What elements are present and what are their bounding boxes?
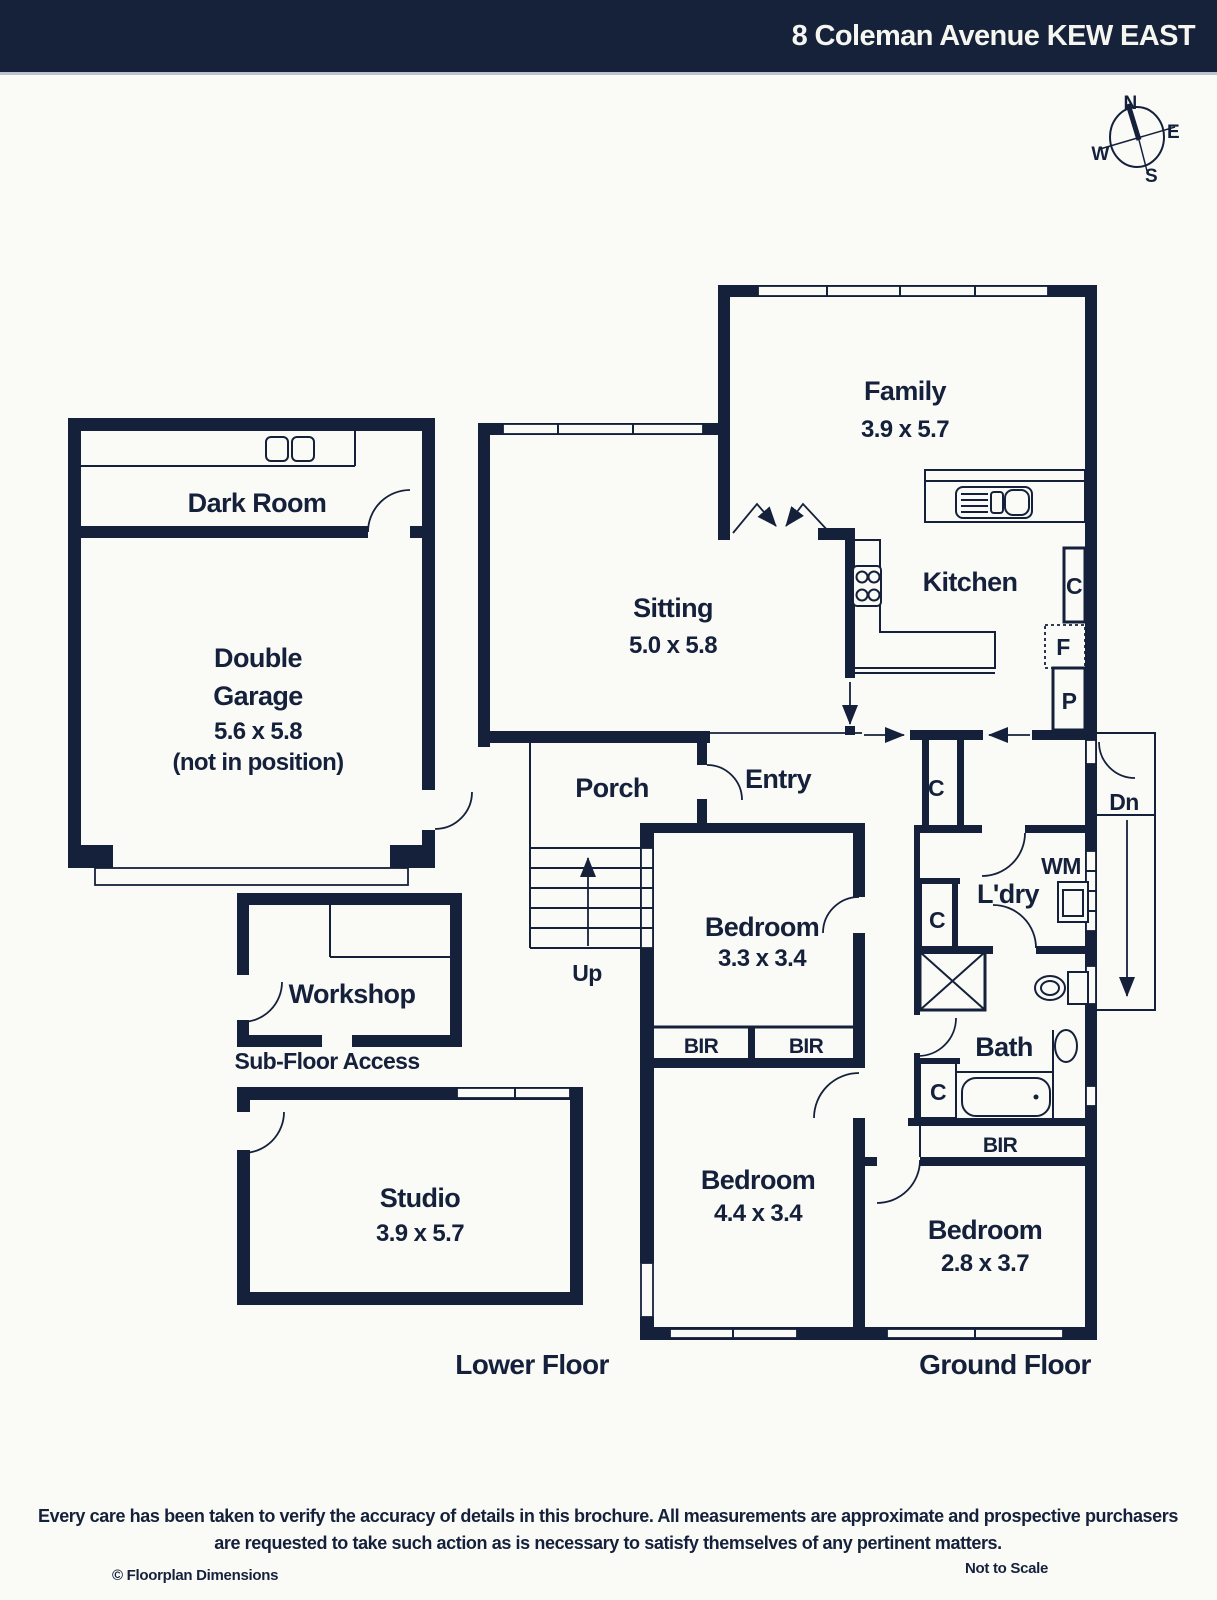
bedroom1-door bbox=[823, 897, 859, 933]
label-dn: Dn bbox=[1109, 789, 1138, 815]
label-hall-cupboard: C bbox=[928, 775, 944, 801]
label-wm: WM bbox=[1041, 853, 1081, 879]
hall-arrows bbox=[709, 682, 1030, 735]
room-label-sitting: Sitting bbox=[633, 593, 713, 623]
room-label-kitchen: Kitchen bbox=[923, 567, 1018, 597]
family-window bbox=[758, 286, 1048, 296]
workshop-structure: Workshop Sub-Floor Access bbox=[234, 893, 462, 1074]
shower-icon bbox=[920, 952, 985, 1010]
room-dims-sitting: 5.0 x 5.8 bbox=[629, 632, 717, 659]
room-dims-studio: 3.9 x 5.7 bbox=[376, 1220, 464, 1247]
laundry-door bbox=[982, 833, 1025, 876]
studio-structure: Studio 3.9 x 5.7 Lower Floor bbox=[237, 1087, 610, 1380]
basin-icon bbox=[1055, 1030, 1077, 1062]
bedroom3-door bbox=[877, 1160, 920, 1203]
room-dims-bedroom2: 4.4 x 3.4 bbox=[714, 1200, 803, 1227]
stairs-down: Dn bbox=[1097, 733, 1155, 1010]
room-label-laundry: L'dry bbox=[977, 879, 1040, 909]
laundry-bath-door bbox=[993, 905, 1036, 948]
label-bir-bath: BIR bbox=[983, 1134, 1018, 1157]
darkroom-sink-icon bbox=[292, 437, 314, 461]
cooktop-icon bbox=[853, 566, 881, 606]
sitting-window bbox=[503, 424, 703, 434]
room-dims-bedroom1: 3.3 x 3.4 bbox=[718, 945, 807, 972]
room-label-garage-1: Double bbox=[214, 643, 302, 673]
room-note-garage: (not in position) bbox=[172, 749, 343, 776]
bath-door bbox=[918, 1018, 956, 1056]
room-label-studio: Studio bbox=[380, 1183, 460, 1213]
room-dims-garage: 5.6 x 5.8 bbox=[214, 718, 302, 745]
label-ground-floor: Ground Floor bbox=[919, 1349, 1091, 1380]
room-label-bath: Bath bbox=[975, 1032, 1033, 1062]
garage-side-door bbox=[435, 792, 472, 829]
footer: Every care has been taken to verify the … bbox=[38, 1506, 1178, 1584]
room-dims-family: 3.9 x 5.7 bbox=[861, 416, 949, 443]
label-sub-floor-access: Sub-Floor Access bbox=[234, 1048, 419, 1074]
floorplan-canvas: 8 Coleman Avenue KEW EAST N E W S Dark R… bbox=[0, 0, 1217, 1600]
label-lower-floor: Lower Floor bbox=[455, 1349, 609, 1380]
room-label-porch: Porch bbox=[575, 773, 649, 803]
kitchen-sink-icon bbox=[956, 487, 1032, 518]
garage-door-panel bbox=[95, 868, 408, 885]
room-label-dark-room: Dark Room bbox=[188, 488, 327, 518]
room-label-bedroom3: Bedroom bbox=[928, 1215, 1042, 1245]
compass-east-label: E bbox=[1167, 122, 1179, 143]
disclaimer-line1: Every care has been taken to verify the … bbox=[38, 1506, 1178, 1526]
garage-structure: Dark Room Double Garage 5.6 x 5.8 (not i… bbox=[68, 418, 472, 885]
room-label-garage-2: Garage bbox=[213, 681, 303, 711]
room-dims-bedroom3: 2.8 x 3.7 bbox=[941, 1250, 1029, 1277]
dark-room-door bbox=[368, 490, 410, 532]
family-double-doors bbox=[733, 504, 830, 533]
floorplan-brochure-page: 8 Coleman Avenue KEW EAST N E W S Dark R… bbox=[0, 0, 1217, 1600]
label-bath-cupboard: C bbox=[930, 1079, 946, 1105]
laundry-bath-block: C L'dry WM C Bath C BIR bbox=[865, 738, 1097, 1166]
kitchen-fixtures: C F P bbox=[853, 470, 1085, 730]
label-bir-right: BIR bbox=[789, 1035, 824, 1058]
disclaimer-line2: are requested to take such action as is … bbox=[214, 1533, 1002, 1553]
page-title: 8 Coleman Avenue KEW EAST bbox=[792, 20, 1196, 52]
label-fridge: F bbox=[1056, 634, 1070, 660]
room-label-bedroom2: Bedroom bbox=[701, 1165, 815, 1195]
studio-door bbox=[243, 1112, 284, 1153]
label-bir-left: BIR bbox=[684, 1035, 719, 1058]
room-label-bedroom1: Bedroom bbox=[705, 912, 819, 942]
entry-door bbox=[707, 765, 742, 800]
workshop-door bbox=[242, 982, 282, 1022]
darkroom-sink-icon bbox=[266, 437, 288, 461]
credit-label: © Floorplan Dimensions bbox=[112, 1567, 278, 1584]
compass-west-label: W bbox=[1091, 144, 1109, 165]
label-pantry: P bbox=[1062, 688, 1077, 714]
room-label-entry: Entry bbox=[745, 764, 812, 794]
washing-machine-icon bbox=[1058, 882, 1088, 922]
room-label-workshop: Workshop bbox=[289, 979, 416, 1009]
room-label-family: Family bbox=[864, 376, 947, 406]
label-kitchen-cupboard: C bbox=[1066, 573, 1082, 599]
studio-window bbox=[457, 1088, 570, 1098]
stairs-up bbox=[530, 848, 653, 948]
header-bar: 8 Coleman Avenue KEW EAST bbox=[0, 0, 1217, 75]
toilet-icon bbox=[1035, 972, 1088, 1004]
scale-note: Not to Scale bbox=[965, 1560, 1048, 1577]
label-laundry-cupboard: C bbox=[929, 907, 945, 933]
bedroom2-door bbox=[814, 1073, 859, 1118]
compass-south-label: S bbox=[1145, 166, 1157, 187]
compass-rose-icon: N E W S bbox=[1091, 93, 1179, 187]
label-up: Up bbox=[572, 960, 602, 986]
dn-door bbox=[1099, 742, 1135, 778]
compass-north-label: N bbox=[1123, 93, 1136, 114]
